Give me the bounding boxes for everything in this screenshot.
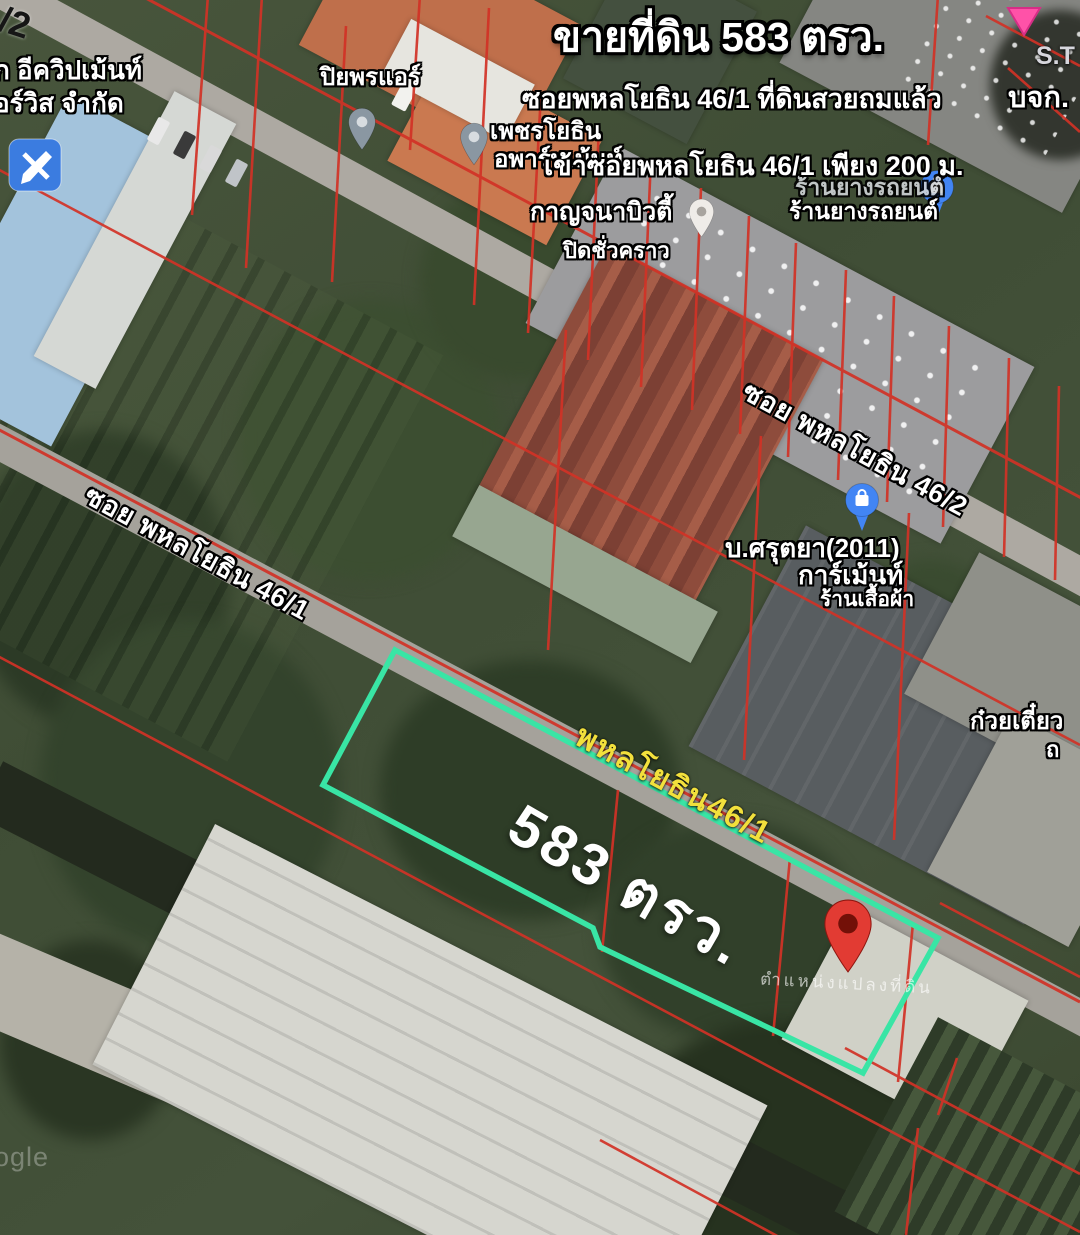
poi-tire-shop-line2[interactable]: ร้านยางรถยนต์: [789, 198, 938, 224]
listing-subtitle-1: ซอยพหลโยธิน 46/1 ที่ดินสวยถมแล้ว: [522, 84, 942, 115]
poi-petch-yothin-line1[interactable]: เพชรโยธิน: [490, 118, 601, 146]
white-map-pin[interactable]: [688, 198, 715, 243]
gray-map-pin[interactable]: [459, 122, 489, 171]
poi-kanchana-line1[interactable]: กาญจนาบิวตี้: [530, 198, 672, 227]
label-company: บจก.: [1008, 82, 1069, 115]
pencil-ruler-icon[interactable]: [8, 138, 62, 197]
label-st: S.T: [1036, 42, 1075, 71]
map-watermark: Google: [0, 1142, 49, 1173]
satellite-map[interactable]: ปิยพรแอร์ เพชรโยธิน อพาร์ทเม้นท์ กาญจนาบ…: [0, 0, 1080, 1235]
poi-equipment-line2[interactable]: อร์วิส จำกัด: [0, 89, 124, 119]
gray-map-pin[interactable]: [347, 107, 377, 156]
poi-piyaporn-air[interactable]: ปิยพรแอร์: [320, 64, 421, 92]
poi-equipment-line1[interactable]: ก อีควิปเม้นท์: [0, 56, 142, 86]
poi-sarutya-line2[interactable]: การ์เม้นท์: [798, 561, 903, 591]
pink-triangle-marker[interactable]: [1005, 6, 1043, 43]
poi-sarutya-line3[interactable]: ร้านเสื้อผ้า: [820, 588, 914, 612]
red-location-pin[interactable]: [822, 898, 874, 979]
poi-noodle-shop-partial[interactable]: ถ: [1046, 737, 1059, 762]
listing-subtitle-2: เข้าซอยพหลโยธิน 46/1 เพียง 200 ม.: [544, 151, 964, 182]
poi-kanchana-line2[interactable]: ปิดชั่วคราว: [563, 238, 670, 263]
poi-noodle-shop[interactable]: ก๋วยเตี๋ยว: [970, 708, 1063, 736]
listing-title: ขายที่ดิน 583 ตรว.: [553, 14, 884, 61]
